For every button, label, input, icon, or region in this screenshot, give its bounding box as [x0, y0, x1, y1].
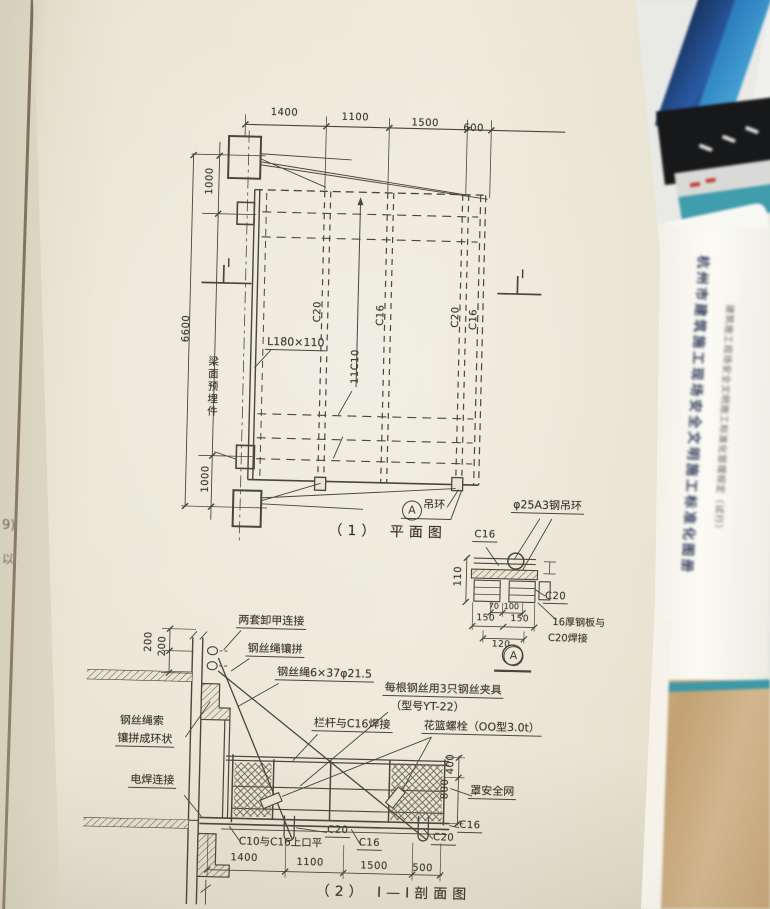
- flush-label: C10与C16上口平: [239, 836, 323, 850]
- section-dim-800: 800: [439, 772, 451, 806]
- detail-dim-120: 120: [492, 641, 511, 651]
- plan-channel-c20-2: C20: [450, 300, 462, 334]
- section-cut-mark-right: I: [521, 268, 525, 281]
- photo-of-open-book: 杭州市建筑施工现场安全文明施工标准化图册 建筑施工现场安全文明施工标准化管理规定…: [0, 0, 770, 909]
- plan-view-lines: [180, 113, 565, 550]
- splice-label: 钢丝绳镶拼: [245, 643, 304, 659]
- clamp-label-line1: 每根钢丝用3只钢丝夹具: [382, 682, 503, 699]
- safety-net-label: 罩安全网: [468, 785, 516, 800]
- weld-connection-label: 电焊连接: [128, 774, 176, 789]
- section-dim-1400: 1400: [230, 852, 258, 864]
- plan-dim-6600: 6600: [180, 311, 192, 345]
- section-dim-200b: 200: [157, 629, 169, 663]
- detail-weld-label-line1: 16厚钢板与: [552, 617, 605, 629]
- detail-ring-label: φ25A3钢吊环: [511, 499, 584, 515]
- section-caption: （2） I—I剖面图: [315, 884, 471, 903]
- plan-dim-1500: 1500: [411, 117, 439, 129]
- section-c20-right: C20: [431, 832, 457, 846]
- plan-caption: （1） 平面图: [328, 524, 447, 542]
- rope-loop-label-line1: 钢丝绳索: [120, 714, 164, 727]
- plan-dim-1000-top: 1000: [204, 164, 216, 198]
- detail-dim-70: 70: [489, 602, 499, 611]
- plan-channel-c20-1: C20: [312, 295, 324, 329]
- angle-steel-label: L180×110: [265, 336, 327, 352]
- turnbuckle-label: 花篮螺栓（OO型3.0t）: [422, 720, 542, 737]
- detail-dim-150-left: 150: [476, 614, 495, 624]
- section-dim-400: 400: [445, 747, 457, 781]
- plan-channel-c16-2: C16: [468, 302, 480, 336]
- detail-c20-label: C20: [543, 591, 569, 605]
- section-view-lines: [81, 624, 476, 909]
- plan-dim-1100: 1100: [341, 112, 369, 124]
- section-dim-1100: 1100: [296, 857, 324, 869]
- rope-spec-label: 钢丝绳6×37φ21.5: [275, 666, 374, 683]
- detail-c16-label: C16: [472, 529, 498, 543]
- section-dim-500: 500: [412, 863, 433, 874]
- detail-a-mark: A: [503, 646, 523, 666]
- detail-weld-label-line2: C20焊接: [548, 633, 588, 645]
- plan-dim-1400: 1400: [271, 107, 299, 119]
- section-c20-left: C20: [325, 825, 351, 839]
- detail-a-lines: [461, 517, 559, 672]
- plan-channel-c16-1: C16: [375, 298, 387, 332]
- detail-dim-150-right: 150: [510, 615, 529, 625]
- plan-joist-label: 11C10: [350, 346, 362, 386]
- ring-detail-mark: A: [402, 500, 422, 520]
- detail-dim-100: 100: [504, 603, 519, 612]
- rope-loop-label-line2: 镶拼成环状: [115, 732, 174, 748]
- rail-weld-label: 栏杆与C16焊接: [312, 717, 393, 733]
- beam-embed-label: 梁面预埋件: [205, 355, 218, 418]
- section-dim-200a: 200: [143, 625, 155, 659]
- section-cut-mark-left: I: [227, 257, 231, 270]
- plan-dim-1000-bottom: 1000: [200, 462, 212, 496]
- section-c16-mid: C16: [357, 837, 383, 851]
- detail-dim-110: 110: [453, 559, 465, 593]
- section-c16-right: C16: [457, 820, 483, 834]
- section-dim-1500: 1500: [360, 860, 388, 872]
- lifting-ring-label: 吊环: [423, 499, 445, 512]
- plan-dim-600: 600: [463, 123, 484, 134]
- shackle-label: 两套卸甲连接: [236, 614, 306, 630]
- clamp-label-line2: （型号YT-22）: [390, 700, 465, 714]
